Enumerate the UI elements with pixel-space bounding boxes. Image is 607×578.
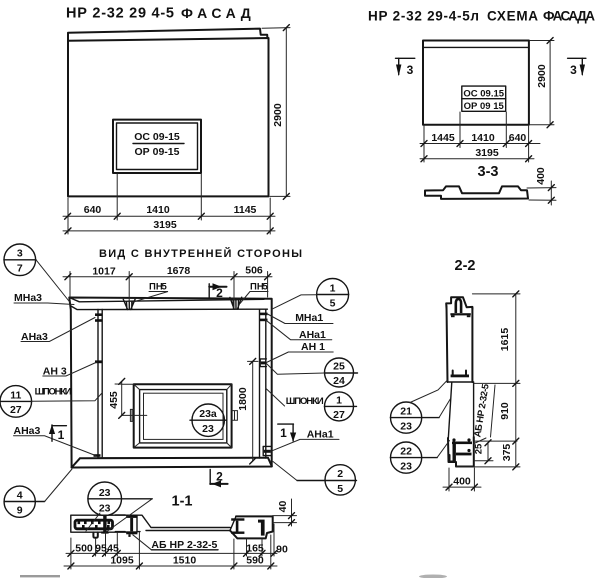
svg-text:1445: 1445: [431, 132, 455, 144]
svg-text:2900: 2900: [272, 103, 284, 127]
svg-text:ФАСАДА: ФАСАДА: [543, 9, 595, 24]
svg-text:455: 455: [108, 391, 120, 409]
svg-text:ОР 09 15: ОР 09 15: [464, 101, 505, 112]
svg-text:1410: 1410: [471, 132, 495, 144]
svg-text:ОС 09.15: ОС 09.15: [463, 88, 504, 99]
svg-text:23: 23: [400, 461, 412, 473]
svg-text:3: 3: [570, 63, 577, 77]
svg-text:11: 11: [10, 390, 21, 402]
svg-text:ФАСАД: ФАСАД: [181, 5, 255, 21]
svg-text:23: 23: [400, 421, 412, 433]
svg-text:25: 25: [474, 443, 485, 454]
svg-text:27: 27: [10, 404, 22, 416]
svg-text:21: 21: [400, 406, 412, 418]
svg-text:3195: 3195: [475, 147, 499, 159]
svg-text:5: 5: [330, 298, 336, 310]
svg-text:НР 2-32 29-4-5л: НР 2-32 29-4-5л: [368, 9, 479, 24]
svg-text:27: 27: [333, 409, 345, 421]
svg-text:23: 23: [99, 502, 111, 514]
svg-text:2900: 2900: [536, 64, 548, 88]
svg-text:23: 23: [202, 423, 214, 435]
svg-text:23а: 23а: [199, 408, 217, 420]
svg-text:4: 4: [17, 490, 23, 502]
svg-text:590: 590: [246, 555, 264, 567]
svg-text:1800: 1800: [237, 387, 249, 411]
svg-text:165: 165: [246, 542, 264, 554]
svg-text:640: 640: [509, 132, 527, 144]
svg-text:АНа1: АНа1: [307, 428, 334, 440]
svg-text:1510: 1510: [173, 555, 197, 567]
svg-text:7: 7: [17, 263, 23, 275]
svg-text:1017: 1017: [92, 266, 116, 278]
svg-text:ОС 09-15: ОС 09-15: [134, 131, 180, 143]
svg-text:5: 5: [263, 282, 269, 293]
svg-text:5: 5: [162, 282, 168, 293]
svg-text:90: 90: [276, 543, 288, 555]
svg-text:500: 500: [75, 542, 93, 554]
svg-text:3-3: 3-3: [478, 164, 499, 180]
svg-text:3195: 3195: [153, 219, 177, 231]
svg-text:2: 2: [216, 286, 223, 300]
svg-text:МНа1: МНа1: [295, 312, 323, 324]
svg-text:ШПОНКИ: ШПОНКИ: [35, 387, 72, 398]
svg-text:1410: 1410: [146, 204, 170, 216]
svg-text:5: 5: [337, 483, 343, 495]
svg-text:НР 2-32 29 4-5: НР 2-32 29 4-5: [66, 6, 174, 22]
svg-text:24: 24: [333, 375, 345, 387]
svg-text:40: 40: [277, 501, 289, 513]
svg-text:3: 3: [17, 248, 23, 260]
svg-text:1678: 1678: [167, 265, 191, 277]
svg-text:1: 1: [330, 283, 336, 295]
svg-text:3: 3: [407, 63, 414, 77]
svg-text:1: 1: [58, 428, 65, 442]
svg-text:400: 400: [453, 476, 471, 488]
svg-text:АБ НР 2-32-5: АБ НР 2-32-5: [472, 382, 491, 438]
svg-text:95: 95: [95, 542, 107, 554]
svg-text:2: 2: [216, 470, 223, 484]
svg-text:ШПОНКИ: ШПОНКИ: [286, 396, 324, 407]
svg-text:ОР 09-15: ОР 09-15: [135, 146, 180, 158]
svg-text:910: 910: [499, 402, 511, 420]
svg-text:ВИД С ВНУТРЕННЕЙ СТОРОНЫ: ВИД С ВНУТРЕННЕЙ СТОРОНЫ: [99, 247, 304, 260]
svg-text:23: 23: [99, 487, 111, 499]
svg-text:375: 375: [501, 444, 513, 462]
svg-text:МНа3: МНа3: [14, 292, 42, 304]
svg-text:АН 1: АН 1: [301, 341, 325, 353]
svg-text:25: 25: [333, 361, 345, 373]
svg-text:45: 45: [107, 542, 119, 554]
svg-text:1615: 1615: [499, 328, 511, 352]
svg-text:1145: 1145: [234, 204, 257, 216]
svg-text:22: 22: [400, 446, 412, 458]
svg-text:1: 1: [280, 426, 287, 440]
svg-text:1-1: 1-1: [172, 494, 193, 510]
svg-text:9: 9: [17, 505, 23, 517]
svg-text:1: 1: [336, 395, 342, 407]
svg-text:1095: 1095: [110, 555, 134, 567]
svg-text:2-2: 2-2: [455, 258, 476, 274]
svg-text:АНа3: АНа3: [14, 425, 41, 437]
svg-text:2: 2: [337, 468, 343, 480]
svg-text:640: 640: [84, 204, 102, 216]
svg-text:506: 506: [245, 265, 263, 277]
svg-text:СХЕМА: СХЕМА: [487, 9, 538, 24]
svg-text:400: 400: [535, 167, 547, 185]
